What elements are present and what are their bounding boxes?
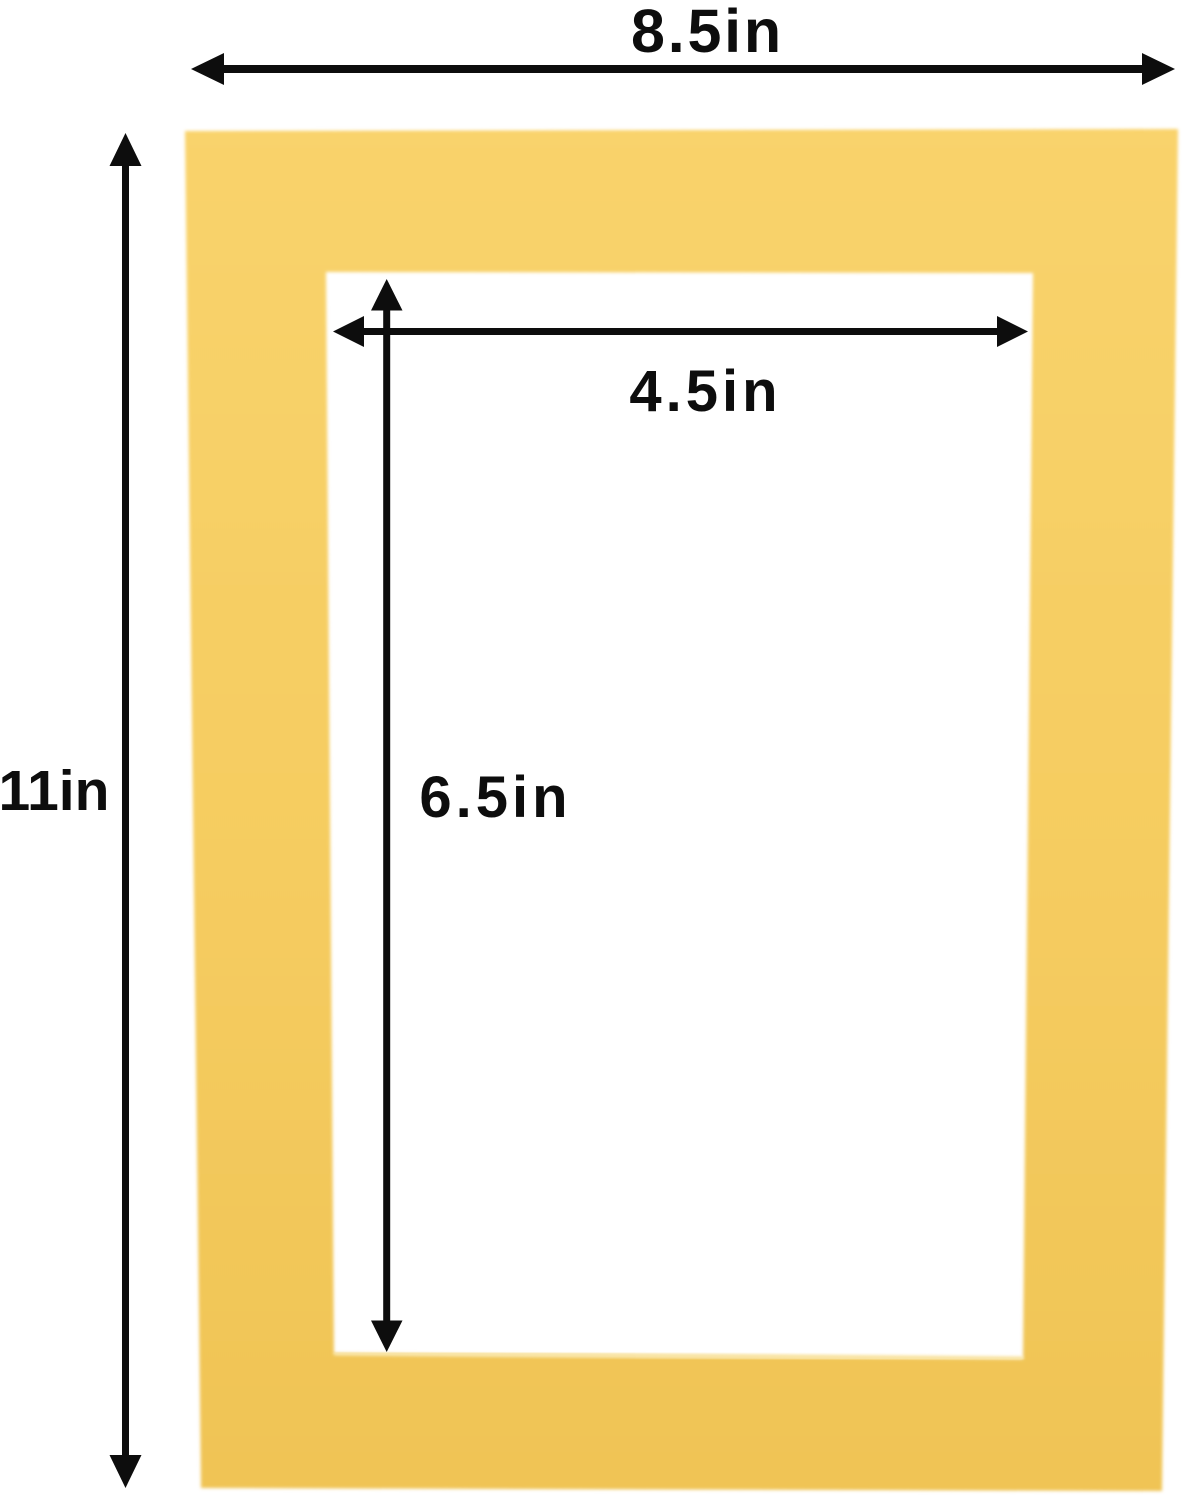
svg-text:4.5in: 4.5in bbox=[629, 359, 781, 424]
svg-text:11in: 11in bbox=[0, 759, 109, 823]
svg-text:6.5in: 6.5in bbox=[419, 765, 571, 830]
svg-text:8.5in: 8.5in bbox=[631, 0, 784, 65]
